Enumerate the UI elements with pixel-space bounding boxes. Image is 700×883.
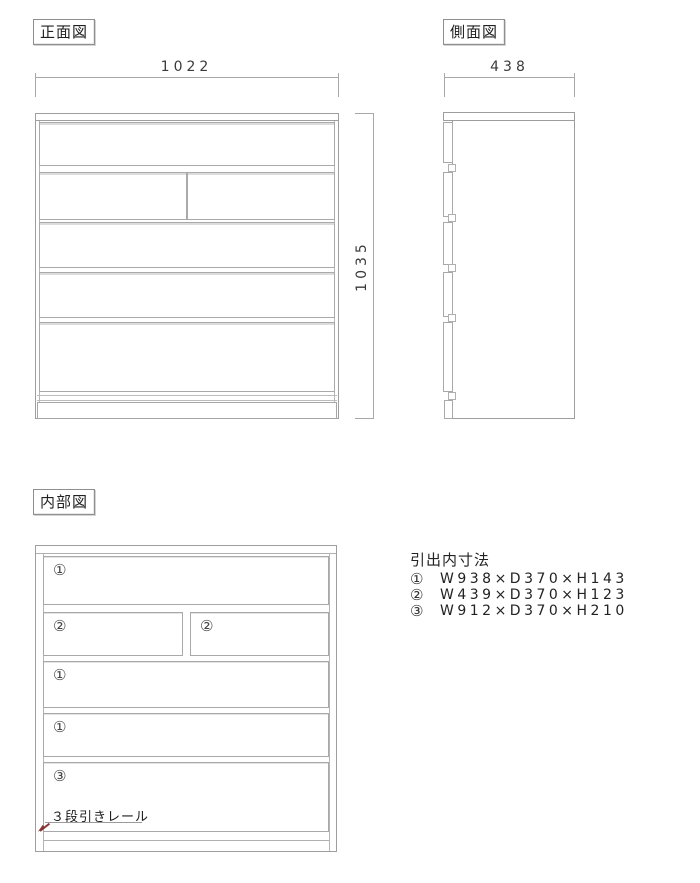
front-width-dimension: 1022 <box>35 60 338 74</box>
front-height-dim-tick-top <box>355 113 374 114</box>
side-view-label-text: 側面図 <box>450 23 498 41</box>
front-drawer-row5 <box>39 322 335 392</box>
side-depth-dimension: 438 <box>444 60 575 74</box>
internal-view-label: 内部図 <box>33 489 95 515</box>
internal-view-label-text: 内部図 <box>40 493 88 511</box>
front-height-dim-tick-bottom <box>355 418 374 419</box>
side-depth-dim-tick-left <box>444 73 445 97</box>
side-rail-notch-2 <box>448 214 456 222</box>
front-width-dim-tick-left <box>35 73 36 97</box>
front-height-dimension: 1035 <box>355 234 369 298</box>
legend-item3-dims: W912×D370×H210 <box>440 603 628 619</box>
internal-bottom-panel-line <box>43 840 329 841</box>
internal-row2-right: ② <box>190 612 329 656</box>
front-view-label-text: 正面図 <box>40 23 88 41</box>
side-view-label: 側面図 <box>443 19 505 45</box>
side-depth-dim-tick-right <box>574 73 575 97</box>
legend-title: 引出内寸法 <box>410 549 490 570</box>
side-rail-notch-3 <box>448 264 456 272</box>
front-drawer-row2-right <box>187 172 335 220</box>
legend-item1-dims: W938×D370×H143 <box>440 571 628 587</box>
side-body-outline <box>452 120 575 419</box>
internal-row2-left: ② <box>43 612 183 656</box>
side-drawer-profile-2 <box>443 172 453 217</box>
internal-row4: ① <box>43 713 329 757</box>
side-rail-notch-4 <box>448 314 456 322</box>
side-drawer-profile-3 <box>443 222 453 265</box>
side-rail-notch-5 <box>448 392 456 400</box>
internal-row2-left-number: ② <box>53 617 66 635</box>
internal-row5-number: ③ <box>53 767 66 785</box>
front-width-dim-line <box>35 77 338 78</box>
side-base-profile <box>444 400 453 419</box>
front-drawer-row4 <box>39 272 335 318</box>
front-drawer-row1 <box>39 122 335 166</box>
internal-row3: ① <box>43 661 329 708</box>
front-view-label: 正面図 <box>33 19 95 45</box>
front-width-dim-tick-right <box>338 73 339 97</box>
side-depth-dim-line <box>444 77 575 78</box>
side-rail-notch-1 <box>448 164 456 172</box>
internal-top-panel-line <box>36 553 336 554</box>
legend-item2-dims: W439×D370×H123 <box>440 587 628 603</box>
internal-row4-number: ① <box>53 718 66 736</box>
front-top-panel <box>35 113 339 121</box>
internal-row1: ① <box>43 556 329 605</box>
internal-right-panel-line <box>329 553 330 851</box>
front-base-strip <box>37 402 337 419</box>
internal-row1-number: ① <box>53 561 66 579</box>
rail-annotation-underline <box>45 822 142 823</box>
internal-row3-number: ① <box>53 666 66 684</box>
legend-item3-number: ③ <box>410 602 423 620</box>
front-bottom-rail-band <box>37 395 337 401</box>
internal-row2-right-number: ② <box>200 617 213 635</box>
front-drawer-row2-left <box>39 172 187 220</box>
side-drawer-profile-4 <box>443 272 453 317</box>
front-height-dim-line <box>373 113 374 419</box>
front-drawer-row3 <box>39 222 335 268</box>
furniture-technical-drawing: 正面図 1022 1035 側面図 438 内部図 <box>0 0 700 883</box>
side-drawer-profile-5 <box>443 322 453 392</box>
side-drawer-profile-1 <box>443 122 453 163</box>
